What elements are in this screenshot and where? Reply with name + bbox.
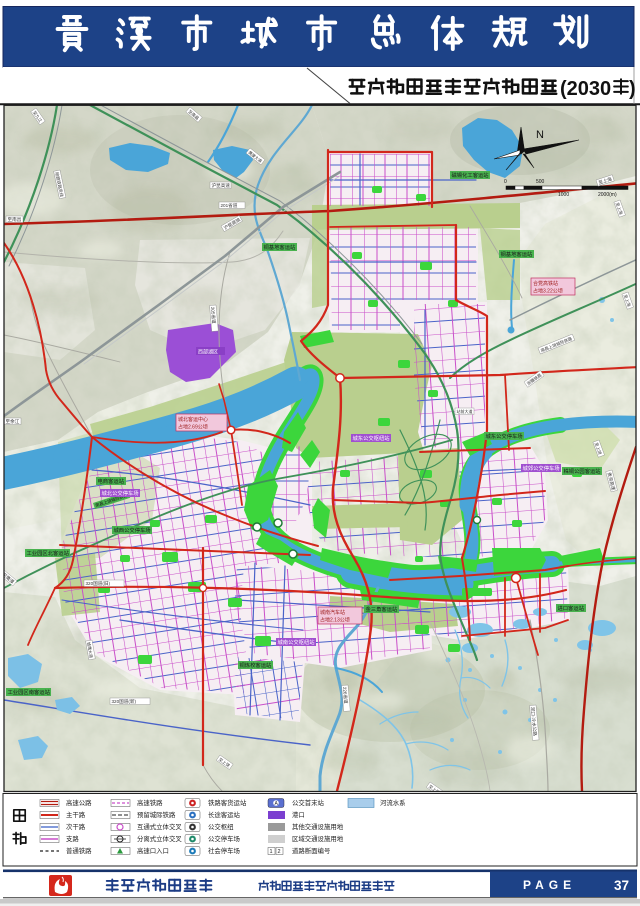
svg-text:钢基地客运站: 钢基地客运站 (501, 250, 533, 258)
svg-text:社会停车场: 社会停车场 (208, 846, 240, 855)
svg-text:工业园区北客运站: 工业园区北客运站 (27, 549, 70, 557)
svg-text:铜炼校客运站: 铜炼校客运站 (240, 661, 272, 669)
svg-text:城南汽车站: 城南汽车站 (320, 609, 345, 616)
svg-text:高速铁路: 高速铁路 (137, 798, 163, 807)
svg-text:占地3.22公顷: 占地3.22公顷 (533, 288, 563, 295)
svg-text:互通式立体交叉: 互通式立体交叉 (137, 822, 182, 831)
svg-text:道路断面编号: 道路断面编号 (292, 846, 330, 855)
svg-text:分离式立体交叉: 分离式立体交叉 (137, 834, 182, 843)
svg-text:城东公交停车场: 城东公交停车场 (486, 432, 523, 440)
svg-text:合党高铁站: 合党高铁站 (533, 280, 558, 287)
svg-text:西部湖区: 西部湖区 (198, 349, 218, 356)
svg-text:占地2.69公顷: 占地2.69公顷 (178, 424, 208, 431)
svg-text:): ) (629, 78, 636, 100)
svg-text:公交首末站: 公交首末站 (292, 798, 325, 807)
svg-text:预留城际铁路: 预留城际铁路 (137, 810, 176, 819)
svg-text:电商客运站: 电商客运站 (98, 477, 125, 485)
svg-text:公交停车场: 公交停车场 (208, 834, 240, 843)
svg-text:PAGE: PAGE (523, 878, 576, 892)
svg-text:2000(m): 2000(m) (598, 192, 617, 198)
svg-text:城西公交停车场: 城西公交停车场 (114, 526, 151, 534)
svg-text:500: 500 (536, 179, 545, 185)
svg-text:320国道(旧): 320国道(旧) (86, 580, 111, 587)
svg-text:港口: 港口 (292, 810, 305, 819)
svg-text:201省道: 201省道 (221, 202, 238, 209)
svg-text:高速公路: 高速公路 (66, 798, 92, 807)
svg-text:城南公交枢纽站: 城南公交枢纽站 (278, 638, 316, 646)
svg-text:高速口入口: 高速口入口 (137, 846, 169, 855)
svg-text:主干路: 主干路 (66, 810, 86, 819)
svg-text:普通铁路: 普通铁路 (66, 846, 92, 855)
svg-text:至余江: 至余江 (6, 418, 20, 425)
svg-text:工业园区南客运站: 工业园区南客运站 (8, 688, 51, 696)
svg-text:沪昆高速: 沪昆高速 (212, 182, 231, 189)
svg-text:1000: 1000 (558, 192, 569, 198)
svg-text:N: N (536, 129, 544, 141)
svg-text:城北公交停车场: 城北公交停车场 (102, 489, 139, 497)
svg-text:城东公交枢纽站: 城东公交枢纽站 (353, 434, 391, 442)
svg-text:河流水系: 河流水系 (380, 798, 406, 807)
svg-text:0: 0 (504, 179, 507, 185)
svg-text:公交枢纽: 公交枢纽 (208, 822, 234, 831)
svg-text:其他交通设施用地: 其他交通设施用地 (292, 822, 344, 831)
svg-text:城郊公交停车场: 城郊公交停车场 (523, 464, 560, 472)
svg-text:城北客运中心: 城北客运中心 (178, 416, 208, 423)
svg-text:金三角客运站: 金三角客运站 (366, 605, 398, 613)
svg-text:进口客运站: 进口客运站 (558, 604, 585, 612)
svg-text:占地2.13公顷: 占地2.13公顷 (320, 617, 350, 624)
svg-text:长途客运站: 长途客运站 (208, 810, 241, 819)
svg-text:320国道(新): 320国道(新) (112, 698, 137, 705)
svg-text:(2030: (2030 (560, 78, 611, 100)
svg-text:支路: 支路 (66, 834, 79, 843)
svg-text:37: 37 (614, 878, 629, 893)
svg-text:磁锡化工客运站: 磁锡化工客运站 (452, 171, 490, 179)
svg-text:站前大道: 站前大道 (457, 408, 473, 414)
svg-text:至南昌: 至南昌 (8, 216, 22, 223)
svg-text:区域交通设施用地: 区域交通设施用地 (292, 834, 344, 843)
svg-text:2: 2 (278, 849, 281, 855)
svg-text:1: 1 (270, 849, 273, 855)
svg-text:株铜公园客运站: 株铜公园客运站 (564, 467, 602, 475)
svg-text:铁路客货运站: 铁路客货运站 (208, 798, 247, 807)
svg-text:铜基地客运站: 铜基地客运站 (264, 243, 296, 251)
svg-text:次干路: 次干路 (66, 822, 86, 831)
